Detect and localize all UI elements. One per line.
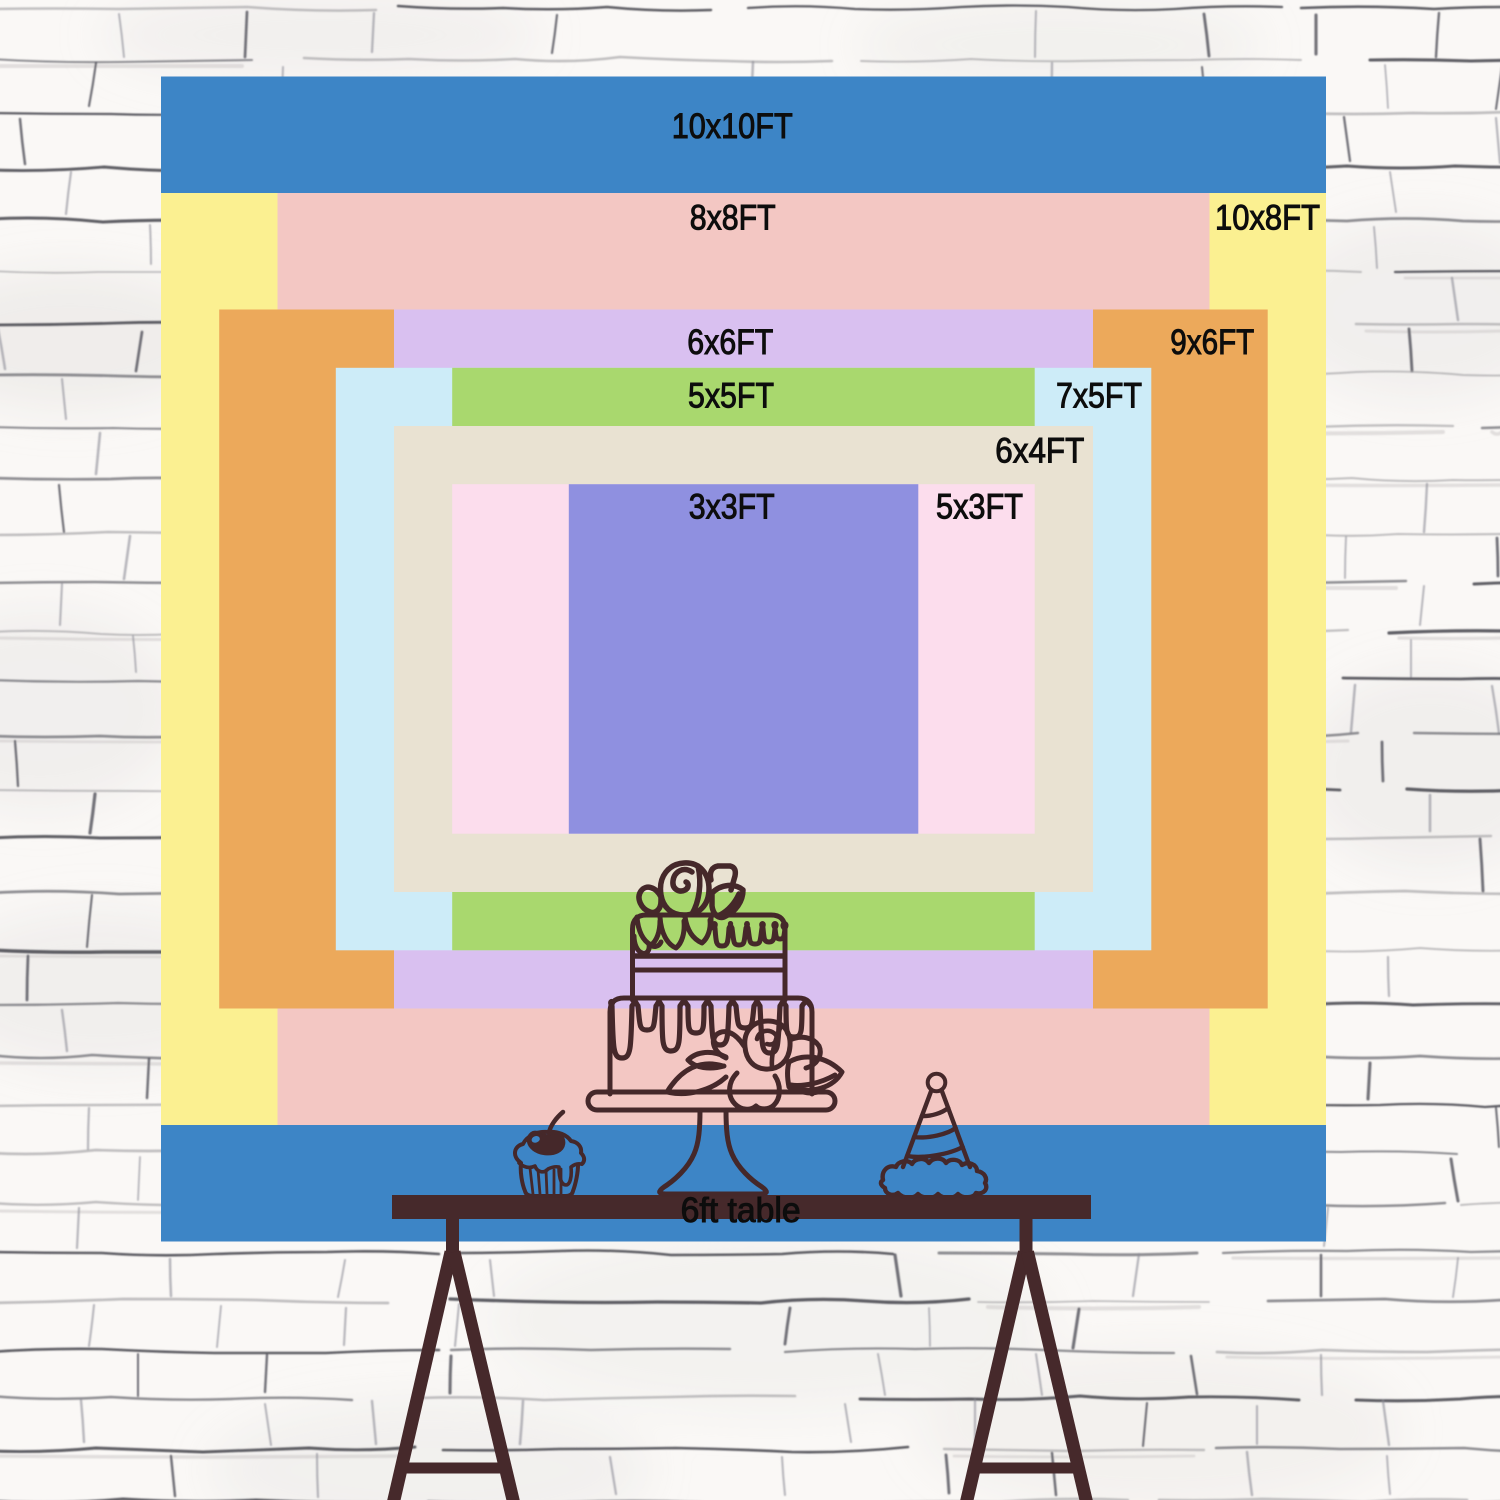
- svg-text:10x8FT: 10x8FT: [1215, 199, 1320, 238]
- svg-text:3x3FT: 3x3FT: [689, 488, 775, 527]
- svg-text:10x10FT: 10x10FT: [672, 107, 793, 146]
- svg-text:6x6FT: 6x6FT: [687, 323, 773, 362]
- svg-text:6ft table: 6ft table: [681, 1191, 801, 1230]
- svg-text:9x6FT: 9x6FT: [1170, 323, 1254, 362]
- svg-text:7x5FT: 7x5FT: [1056, 377, 1142, 416]
- svg-text:8x8FT: 8x8FT: [690, 199, 776, 238]
- svg-text:5x3FT: 5x3FT: [936, 488, 1023, 527]
- svg-text:6x4FT: 6x4FT: [995, 432, 1084, 471]
- svg-text:5x5FT: 5x5FT: [688, 377, 774, 416]
